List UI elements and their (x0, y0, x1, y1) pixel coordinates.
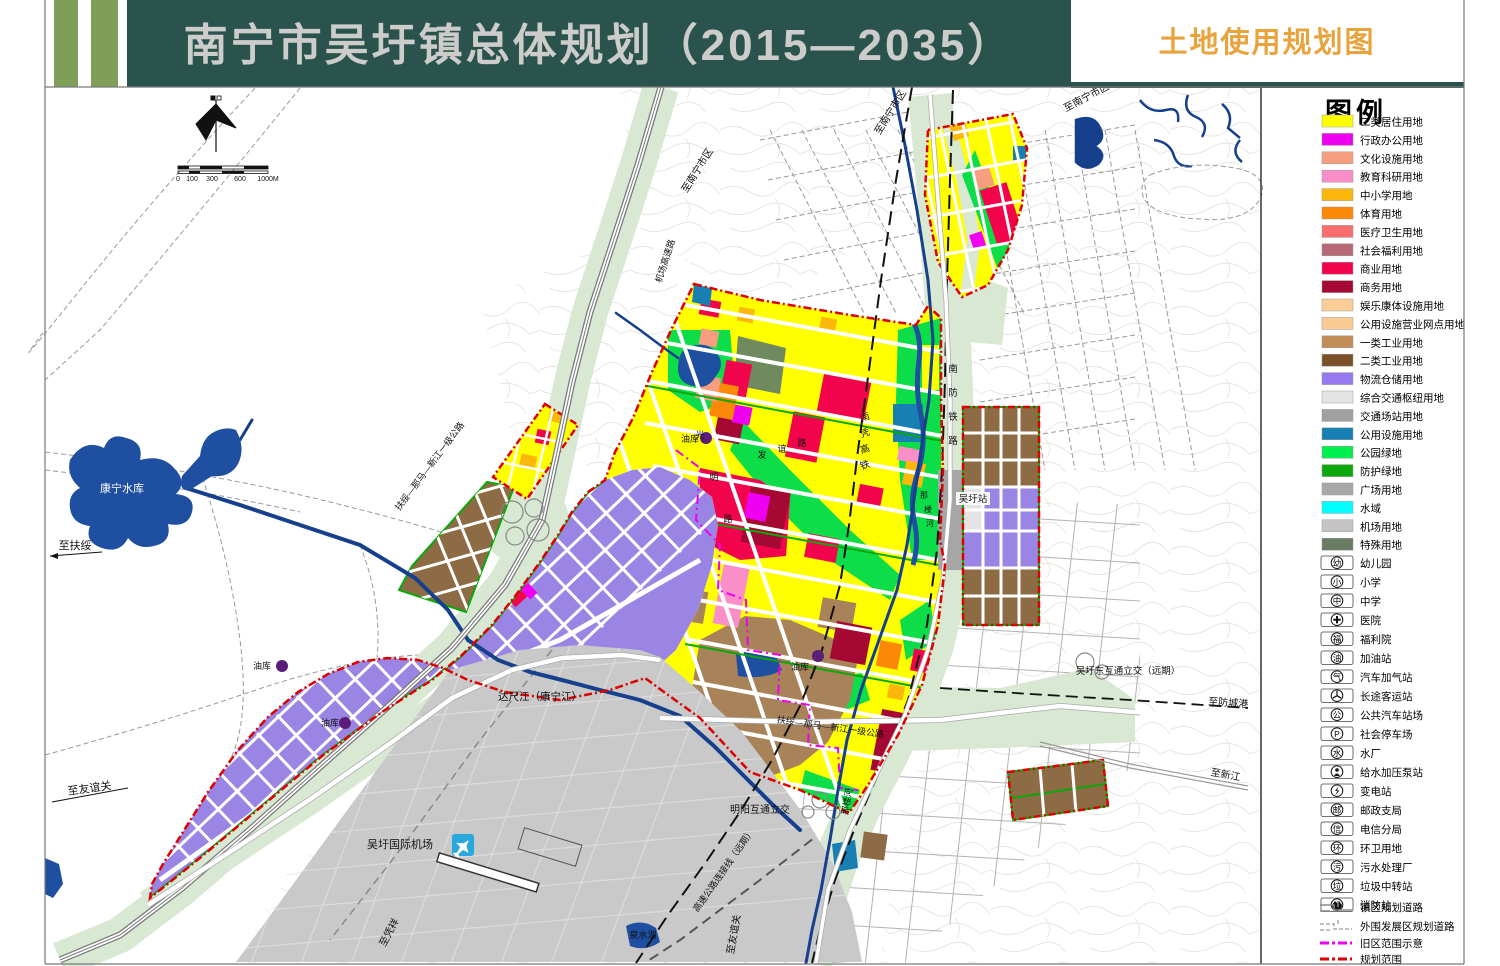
svg-text:明: 明 (709, 472, 718, 482)
svg-text:环: 环 (1333, 843, 1342, 853)
svg-text:汽车加气站: 汽车加气站 (1360, 671, 1413, 684)
svg-text:水域: 水域 (1360, 502, 1382, 515)
svg-text:医疗卫生用地: 医疗卫生用地 (1360, 226, 1423, 239)
svg-text:公用设施营业网点用地: 公用设施营业网点用地 (1360, 318, 1465, 331)
svg-text:商务用地: 商务用地 (1360, 281, 1402, 294)
svg-text:河: 河 (926, 518, 934, 528)
svg-text:一类工业用地: 一类工业用地 (1360, 336, 1423, 349)
svg-text:0: 0 (176, 176, 180, 183)
svg-text:300: 300 (206, 176, 218, 183)
svg-text:小: 小 (1333, 577, 1342, 587)
svg-text:社会福利用地: 社会福利用地 (1360, 244, 1423, 257)
svg-text:发: 发 (757, 449, 766, 460)
svg-text:油库: 油库 (321, 717, 339, 728)
svg-text:加油站: 加油站 (1360, 652, 1392, 665)
svg-text:机场用地: 机场用地 (1360, 520, 1402, 533)
svg-text:防: 防 (948, 387, 958, 399)
svg-text:商业用地: 商业用地 (1360, 263, 1402, 276)
svg-text:体育用地: 体育用地 (1360, 208, 1402, 221)
svg-text:防护绿地: 防护绿地 (1360, 465, 1402, 478)
svg-text:泉水湖: 泉水湖 (629, 929, 656, 940)
svg-text:娱乐康体设施用地: 娱乐康体设施用地 (1360, 300, 1444, 313)
svg-text:路: 路 (948, 435, 958, 447)
svg-text:中学: 中学 (1360, 595, 1381, 608)
svg-text:社会停车场: 社会停车场 (1360, 728, 1413, 741)
svg-text:吴圩站: 吴圩站 (959, 493, 988, 505)
svg-text:福: 福 (1333, 634, 1342, 644)
svg-text:100: 100 (186, 176, 198, 183)
svg-text:外围发展区规划道路: 外围发展区规划道路 (1360, 920, 1455, 933)
svg-text:明阳互通立交: 明阳互通立交 (730, 803, 790, 816)
svg-text:行政办公用地: 行政办公用地 (1360, 134, 1423, 147)
svg-text:幼: 幼 (1333, 558, 1342, 568)
svg-text:P: P (1334, 729, 1340, 739)
svg-text:吴圩东互通立交（远期）: 吴圩东互通立交（远期） (1076, 665, 1181, 677)
svg-text:福利院: 福利院 (1360, 633, 1392, 646)
svg-text:垃: 垃 (1333, 881, 1342, 891)
svg-text:谊: 谊 (777, 443, 786, 454)
svg-text:物流仓储用地: 物流仓储用地 (1360, 373, 1423, 386)
svg-text:镇区规划道路: 镇区规划道路 (1360, 901, 1423, 914)
svg-text:土地使用规划图: 土地使用规划图 (1158, 26, 1375, 59)
svg-text:医院: 医院 (1360, 614, 1382, 627)
svg-text:公: 公 (1333, 710, 1342, 720)
svg-text:南: 南 (948, 363, 958, 375)
svg-text:环卫用地: 环卫用地 (1360, 842, 1402, 855)
svg-text:至扶绥: 至扶绥 (59, 538, 92, 552)
svg-text:垃圾中转站: 垃圾中转站 (1360, 880, 1413, 893)
svg-text:水: 水 (1333, 748, 1342, 758)
svg-text:信: 信 (1333, 824, 1342, 834)
svg-text:康宁水库: 康宁水库 (100, 481, 144, 495)
svg-text:南宁市吴圩镇总体规划（2015—2035）: 南宁市吴圩镇总体规划（2015—2035） (184, 21, 1015, 70)
svg-text:污: 污 (1333, 862, 1342, 872)
svg-text:旧区范围示意: 旧区范围示意 (1360, 937, 1423, 950)
svg-text:二类居住用地: 二类居住用地 (1360, 116, 1423, 129)
svg-text:变电站: 变电站 (1360, 785, 1392, 798)
svg-text:交通场站用地: 交通场站用地 (1360, 410, 1423, 423)
svg-text:特殊用地: 特殊用地 (1360, 539, 1402, 552)
svg-text:公用设施用地: 公用设施用地 (1360, 428, 1423, 441)
svg-text:光: 光 (695, 429, 704, 440)
svg-text:教育科研用地: 教育科研用地 (1360, 171, 1423, 184)
svg-text:给水加压泵站: 给水加压泵站 (1360, 766, 1423, 779)
svg-text:广场用地: 广场用地 (1360, 484, 1402, 497)
svg-text:铁: 铁 (948, 411, 958, 423)
svg-text:幼儿园: 幼儿园 (1360, 557, 1392, 570)
svg-text:公园绿地: 公园绿地 (1360, 447, 1402, 460)
svg-text:中小学用地: 中小学用地 (1360, 189, 1413, 202)
svg-text:邮政支局: 邮政支局 (1360, 804, 1402, 817)
svg-text:综合交通枢纽用地: 综合交通枢纽用地 (1360, 392, 1444, 405)
svg-text:1000M: 1000M (257, 176, 279, 183)
svg-text:二类工业用地: 二类工业用地 (1360, 355, 1423, 368)
svg-text:600: 600 (234, 176, 246, 183)
svg-text:楼: 楼 (924, 504, 932, 514)
svg-text:那: 那 (920, 491, 928, 500)
svg-text:油库: 油库 (791, 661, 809, 672)
svg-text:水厂: 水厂 (1360, 748, 1381, 760)
svg-text:电信分局: 电信分局 (1360, 823, 1402, 836)
svg-text:邮: 邮 (1333, 805, 1342, 815)
svg-text:路: 路 (797, 437, 806, 448)
svg-text:小学: 小学 (1360, 576, 1381, 589)
svg-text:吴圩国际机场: 吴圩国际机场 (367, 837, 433, 851)
svg-text:达尺江（康宁江）: 达尺江（康宁江） (498, 690, 582, 703)
svg-text:路: 路 (723, 513, 732, 524)
svg-text:文化设施用地: 文化设施用地 (1360, 152, 1423, 165)
svg-text:公共汽车站场: 公共汽车站场 (1360, 709, 1423, 722)
svg-text:长途客运站: 长途客运站 (1360, 690, 1413, 703)
svg-text:污水处理厂: 污水处理厂 (1360, 862, 1413, 874)
svg-text:油库: 油库 (253, 660, 271, 671)
svg-text:油: 油 (1333, 653, 1342, 663)
svg-text:气: 气 (1333, 672, 1342, 682)
svg-text:中: 中 (1333, 596, 1342, 606)
